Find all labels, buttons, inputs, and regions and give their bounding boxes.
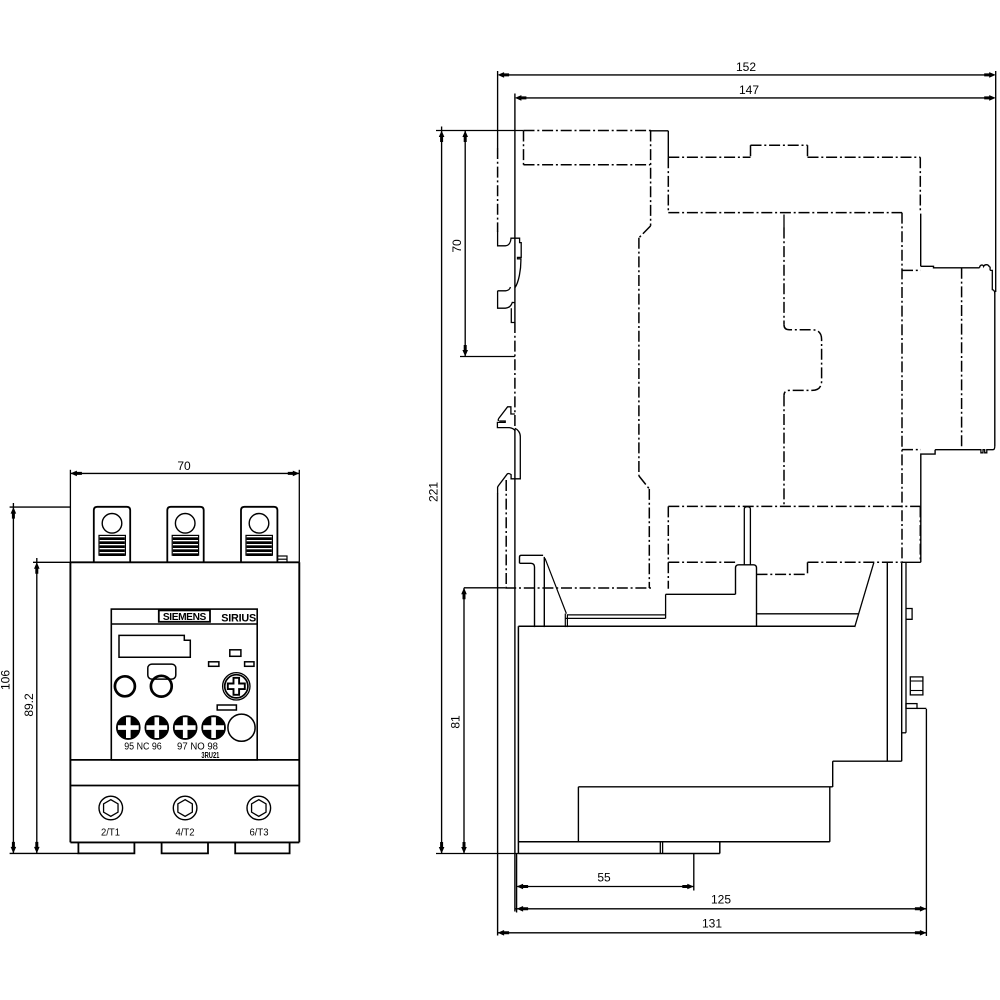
svg-text:89.2: 89.2: [22, 693, 36, 717]
svg-text:2/T1: 2/T1: [101, 827, 120, 839]
svg-text:147: 147: [739, 83, 759, 97]
svg-text:125: 125: [711, 893, 731, 907]
svg-text:221: 221: [427, 482, 441, 502]
svg-text:81: 81: [449, 715, 463, 729]
svg-text:152: 152: [736, 60, 756, 74]
svg-text:SIEMENS: SIEMENS: [163, 612, 207, 623]
svg-text:4/T2: 4/T2: [176, 827, 195, 839]
svg-text:106: 106: [0, 670, 13, 690]
svg-text:SIRIUS: SIRIUS: [221, 612, 256, 624]
svg-text:70: 70: [177, 459, 191, 473]
svg-text:70: 70: [450, 239, 464, 253]
svg-text:55: 55: [597, 871, 611, 885]
svg-text:6/T3: 6/T3: [250, 827, 269, 839]
svg-text:131: 131: [702, 917, 722, 931]
svg-text:3RU21: 3RU21: [201, 751, 219, 760]
svg-text:95 NC 96: 95 NC 96: [124, 742, 162, 753]
